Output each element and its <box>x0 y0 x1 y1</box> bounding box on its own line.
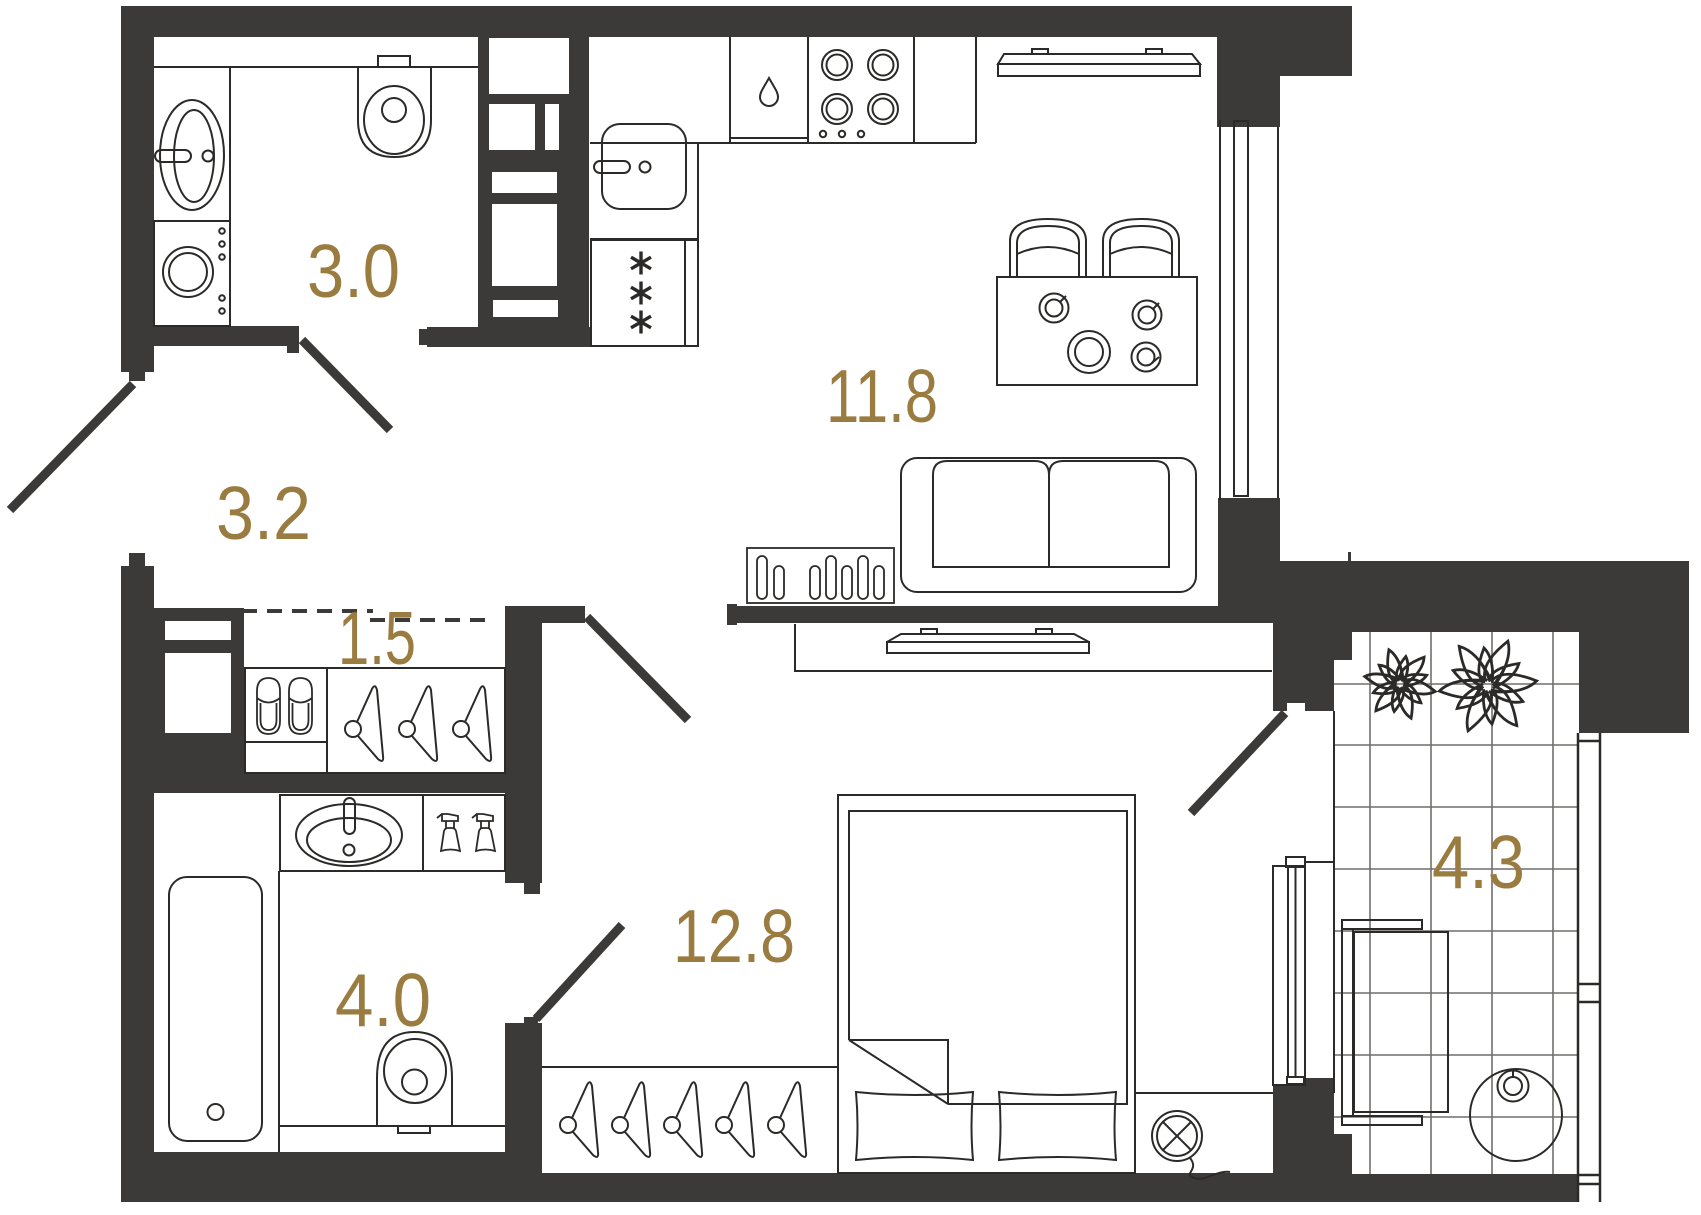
svg-text:3.0: 3.0 <box>307 229 400 313</box>
svg-text:1.5: 1.5 <box>338 596 416 680</box>
svg-text:4.0: 4.0 <box>335 958 431 1042</box>
svg-text:12.8: 12.8 <box>673 894 795 978</box>
svg-text:4.3: 4.3 <box>1432 820 1525 904</box>
svg-text:3.2: 3.2 <box>216 471 311 555</box>
svg-text:11.8: 11.8 <box>826 354 938 438</box>
